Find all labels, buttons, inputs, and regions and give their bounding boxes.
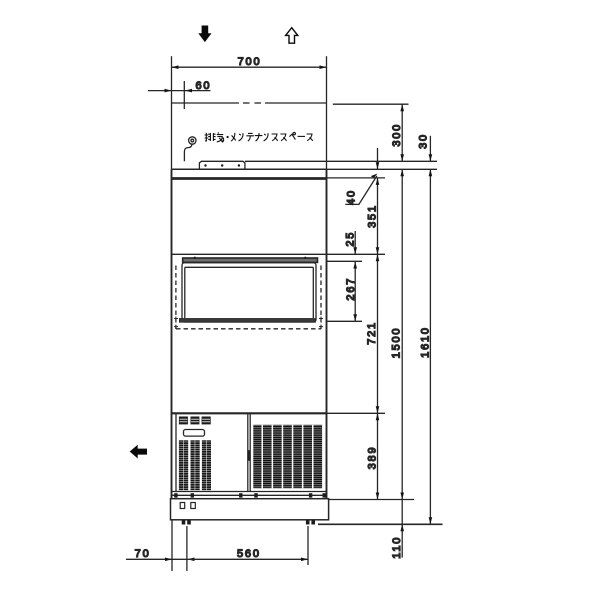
- svg-text:30: 30: [418, 133, 430, 149]
- svg-text:560: 560: [237, 548, 261, 560]
- svg-text:300: 300: [391, 123, 403, 147]
- svg-text:70: 70: [135, 548, 151, 560]
- svg-text:721: 721: [366, 321, 378, 345]
- svg-text:389: 389: [367, 446, 379, 470]
- svg-text:1500: 1500: [391, 327, 403, 359]
- svg-text:700: 700: [238, 56, 262, 68]
- svg-text:351: 351: [367, 204, 379, 228]
- svg-text:25: 25: [345, 231, 357, 247]
- svg-text:1610: 1610: [420, 326, 432, 358]
- svg-text:267: 267: [345, 277, 357, 301]
- svg-text:60: 60: [195, 80, 211, 92]
- svg-text:40: 40: [346, 189, 358, 205]
- svg-text:110: 110: [391, 536, 403, 559]
